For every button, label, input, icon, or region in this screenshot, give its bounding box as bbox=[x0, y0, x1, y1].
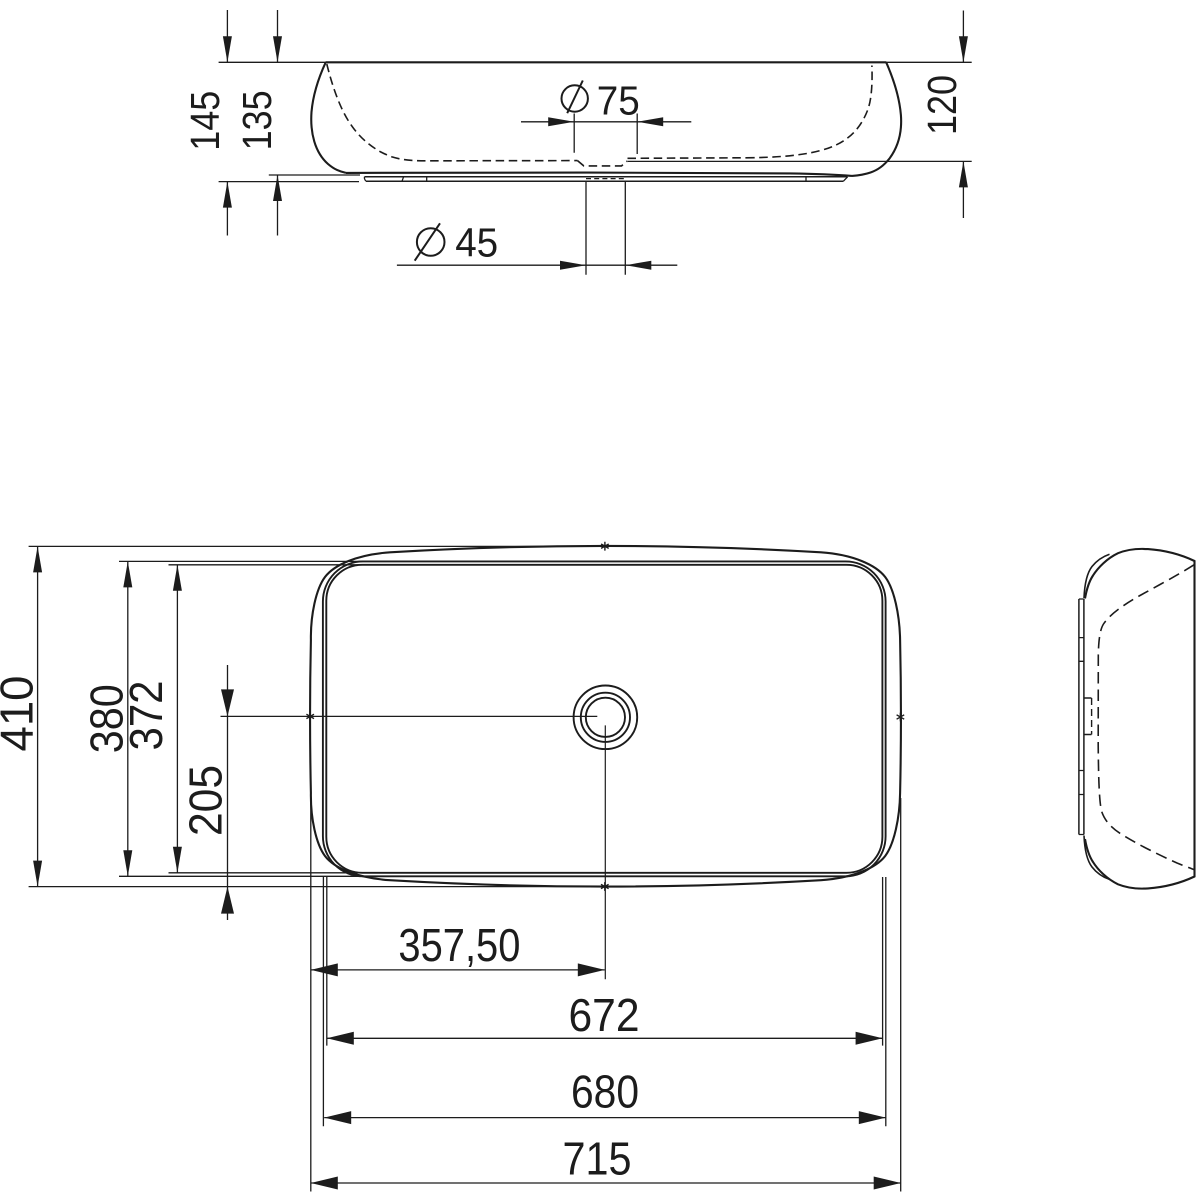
svg-text:680: 680 bbox=[571, 1066, 639, 1118]
svg-text:75: 75 bbox=[597, 77, 640, 123]
svg-text:372: 372 bbox=[120, 681, 172, 751]
svg-text:357,50: 357,50 bbox=[398, 919, 520, 971]
svg-text:410: 410 bbox=[0, 676, 42, 752]
svg-text:672: 672 bbox=[569, 989, 640, 1041]
svg-text:145: 145 bbox=[182, 91, 228, 151]
svg-text:45: 45 bbox=[455, 220, 498, 266]
svg-text:135: 135 bbox=[234, 90, 280, 150]
svg-text:715: 715 bbox=[563, 1133, 632, 1185]
svg-text:120: 120 bbox=[919, 75, 965, 135]
svg-text:205: 205 bbox=[180, 765, 232, 836]
